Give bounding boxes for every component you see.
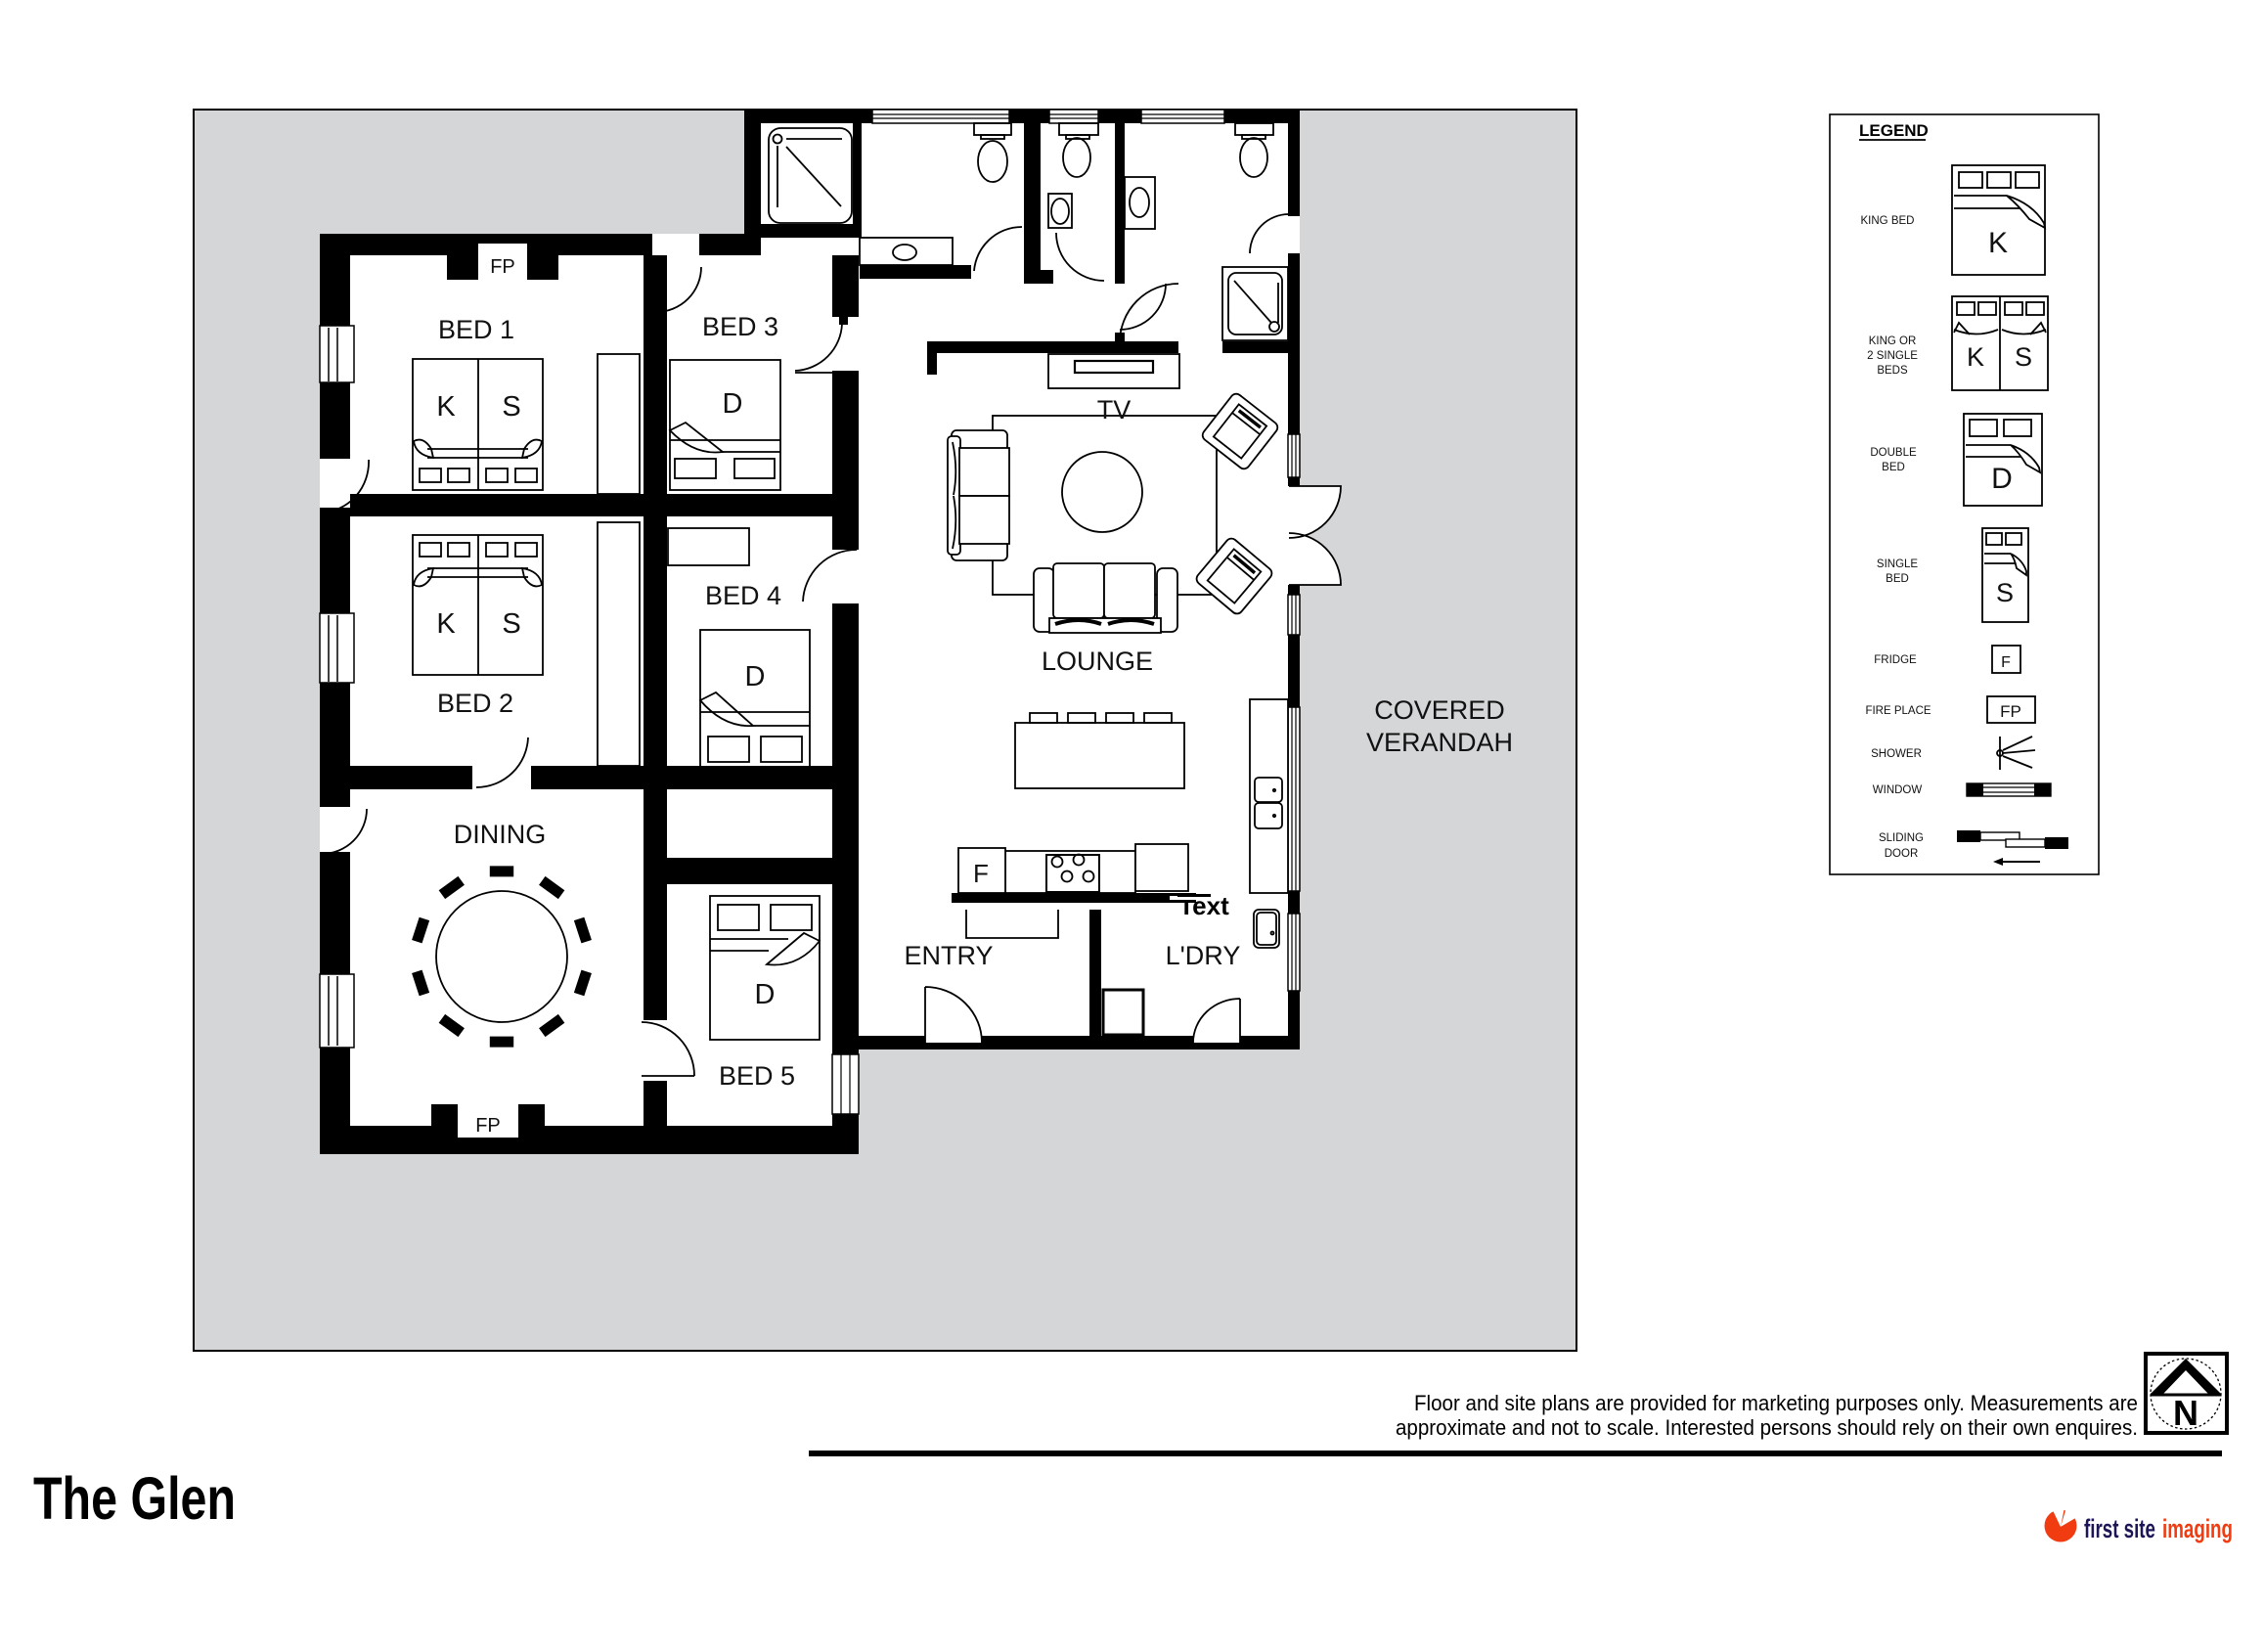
svg-text:BED: BED xyxy=(1882,462,1905,473)
svg-text:K: K xyxy=(1988,227,2008,259)
svg-text:VERANDAH: VERANDAH xyxy=(1366,728,1513,757)
svg-text:first site: first site xyxy=(2084,1514,2155,1543)
svg-text:The Glen: The Glen xyxy=(33,1465,236,1532)
svg-text:S: S xyxy=(1996,578,2014,607)
svg-text:FIRE PLACE: FIRE PLACE xyxy=(1865,705,1931,717)
svg-text:FP: FP xyxy=(490,256,515,278)
svg-text:BED 5: BED 5 xyxy=(719,1061,795,1091)
svg-text:K: K xyxy=(1967,342,1984,372)
svg-text:DOOR: DOOR xyxy=(1885,848,1919,860)
svg-text:2 SINGLE: 2 SINGLE xyxy=(1867,350,1918,362)
svg-text:S: S xyxy=(2015,342,2032,372)
svg-text:Floor and site plans are provi: Floor and site plans are provided for ma… xyxy=(1414,1391,2138,1415)
svg-text:DINING: DINING xyxy=(454,820,547,849)
svg-text:LEGEND: LEGEND xyxy=(1859,121,1929,140)
svg-text:BED: BED xyxy=(1886,573,1909,585)
svg-text:COVERED: COVERED xyxy=(1374,695,1505,725)
svg-text:L'DRY: L'DRY xyxy=(1166,941,1241,970)
svg-text:F: F xyxy=(973,859,989,888)
svg-text:N: N xyxy=(2173,1393,2198,1433)
svg-text:SINGLE: SINGLE xyxy=(1877,558,1919,570)
svg-text:BED 4: BED 4 xyxy=(705,581,781,610)
svg-text:D: D xyxy=(755,979,776,1010)
svg-text:WINDOW: WINDOW xyxy=(1873,784,1923,796)
svg-text:BED 1: BED 1 xyxy=(438,315,514,344)
svg-text:S: S xyxy=(502,608,520,640)
svg-text:FRIDGE: FRIDGE xyxy=(1874,654,1917,666)
svg-text:BED 3: BED 3 xyxy=(702,312,778,341)
svg-text:FP: FP xyxy=(475,1115,501,1137)
svg-text:LOUNGE: LOUNGE xyxy=(1042,647,1153,676)
svg-text:KING OR: KING OR xyxy=(1869,335,1917,347)
svg-text:K: K xyxy=(436,608,456,640)
svg-text:F: F xyxy=(2001,654,2011,671)
svg-text:imaging: imaging xyxy=(2162,1514,2233,1543)
svg-text:ENTRY: ENTRY xyxy=(904,941,993,970)
svg-text:DOUBLE: DOUBLE xyxy=(1870,447,1917,459)
svg-text:approximate and not to scale.: approximate and not to scale. Interested… xyxy=(1396,1415,2138,1440)
svg-text:D: D xyxy=(745,661,766,692)
svg-text:D: D xyxy=(1991,463,2013,495)
svg-text:KING BED: KING BED xyxy=(1861,215,1915,227)
svg-text:TV: TV xyxy=(1097,395,1132,424)
svg-text:SLIDING: SLIDING xyxy=(1879,832,1924,844)
svg-text:D: D xyxy=(723,388,743,420)
svg-text:FP: FP xyxy=(2000,702,2021,721)
svg-text:K: K xyxy=(436,391,456,423)
svg-text:BED 2: BED 2 xyxy=(437,689,513,718)
svg-text:BEDS: BEDS xyxy=(1877,365,1908,377)
svg-text:S: S xyxy=(502,391,520,423)
svg-text:SHOWER: SHOWER xyxy=(1871,748,1922,760)
